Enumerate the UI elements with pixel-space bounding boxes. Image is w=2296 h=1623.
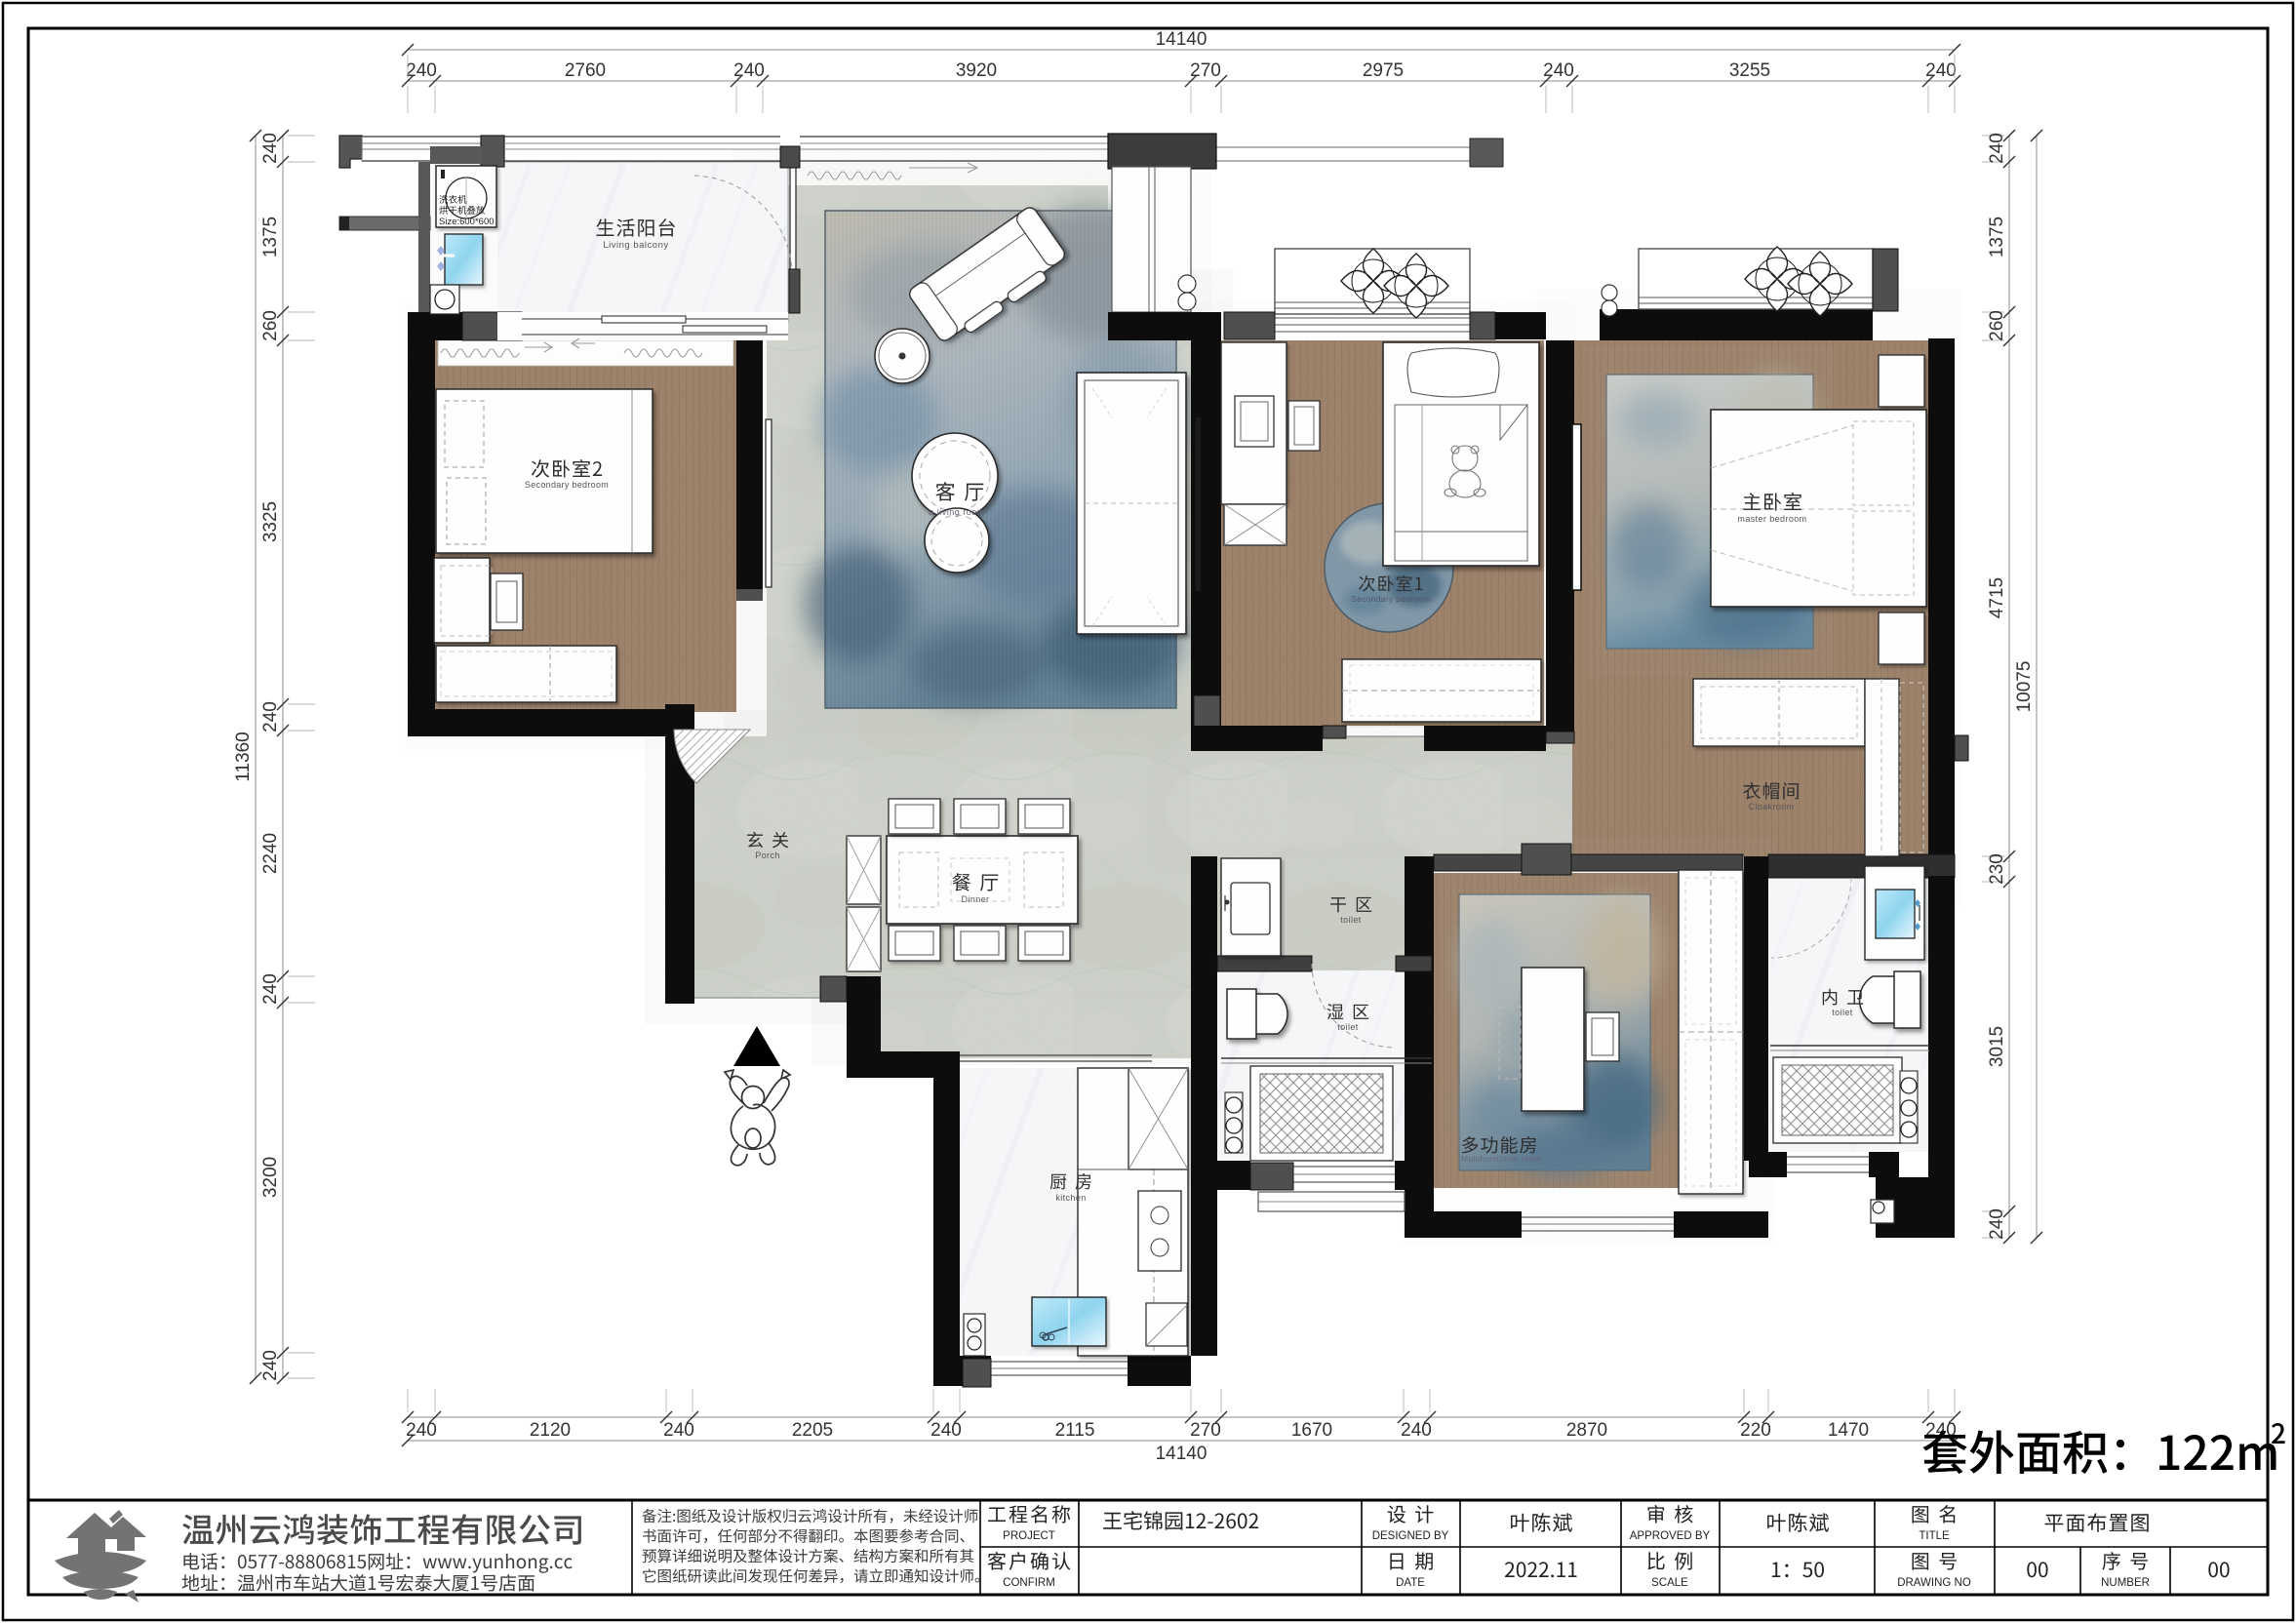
svg-text:3255: 3255 [1729,60,1770,81]
svg-text:2115: 2115 [1055,1420,1095,1441]
svg-text:Living balcony: Living balcony [603,240,668,251]
svg-text:14140: 14140 [1156,1444,1207,1464]
svg-text:11360: 11360 [233,732,254,781]
svg-text:240: 240 [406,60,437,81]
svg-text:270: 270 [1190,60,1221,81]
svg-text:1470: 1470 [1828,1420,1869,1441]
svg-text:3015: 3015 [1987,1026,2007,1067]
svg-text:DATE: DATE [1396,1577,1425,1589]
svg-text:240: 240 [1543,60,1574,81]
svg-text:APPROVED BY: APPROVED BY [1630,1530,1711,1542]
svg-text:240: 240 [1987,133,2007,164]
svg-text:260: 260 [1987,310,2007,341]
svg-text:1375: 1375 [1987,217,2007,257]
svg-text:PROJECT: PROJECT [1003,1530,1055,1542]
svg-text:Dinner: Dinner [962,894,990,904]
svg-text:240: 240 [1925,60,1957,81]
svg-text:DESIGNED BY: DESIGNED BY [1372,1530,1449,1542]
svg-text:14140: 14140 [1156,29,1207,50]
svg-text:3200: 3200 [260,1157,281,1198]
svg-text:Multifunctional room: Multifunctional room [1461,1154,1541,1164]
svg-text:240: 240 [1987,1208,2007,1240]
svg-text:220: 220 [1740,1420,1771,1441]
svg-text:SCALE: SCALE [1651,1577,1688,1589]
svg-text:3920: 3920 [956,60,997,81]
svg-text:NUMBER: NUMBER [2101,1577,2150,1589]
svg-text:1670: 1670 [1291,1420,1332,1441]
svg-text:240: 240 [1401,1420,1432,1441]
svg-text:Cloakroom: Cloakroom [1748,802,1794,811]
svg-text:240: 240 [663,1420,694,1441]
svg-text:3325: 3325 [260,501,281,542]
svg-text:240: 240 [260,1350,281,1381]
svg-text:Porch: Porch [755,851,780,860]
svg-text:Secondary bedroom: Secondary bedroom [1351,594,1431,604]
svg-text:270: 270 [1190,1420,1221,1441]
svg-text:kitchen: kitchen [1055,1193,1086,1203]
svg-text:toilet: toilet [1832,1008,1853,1017]
svg-text:DRAWING NO: DRAWING NO [1897,1577,1971,1589]
svg-text:1375: 1375 [260,217,281,257]
svg-text:240: 240 [930,1420,962,1441]
svg-text:Secondary bedroom: Secondary bedroom [525,480,609,490]
svg-text:TITLE: TITLE [1919,1530,1950,1542]
svg-text:260: 260 [260,310,281,341]
svg-text:CONFIRM: CONFIRM [1003,1577,1055,1589]
svg-text:2120: 2120 [530,1420,571,1441]
svg-text:toilet: toilet [1337,1022,1359,1032]
svg-text:master bedroom: master bedroom [1737,514,1806,524]
svg-text:2975: 2975 [1363,60,1404,81]
svg-text:240: 240 [260,973,281,1005]
svg-text:a living room: a living room [929,507,985,517]
svg-text:240: 240 [733,60,765,81]
svg-text:240: 240 [260,133,281,164]
svg-text:toilet: toilet [1340,915,1362,925]
svg-text:2870: 2870 [1566,1420,1607,1441]
svg-text:2205: 2205 [792,1420,833,1441]
svg-text:240: 240 [260,701,281,732]
svg-text:2760: 2760 [565,60,606,81]
svg-text:Size:600*600: Size:600*600 [439,217,495,227]
svg-text:230: 230 [1987,853,2007,885]
svg-text:2240: 2240 [260,833,281,874]
svg-text:10075: 10075 [2014,661,2035,713]
svg-text:4715: 4715 [1987,577,2007,618]
